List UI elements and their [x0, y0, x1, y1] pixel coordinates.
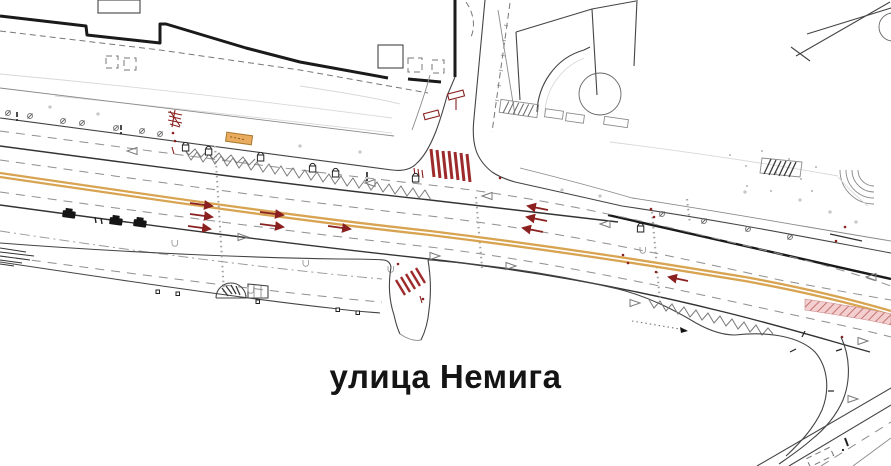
section-line — [215, 146, 224, 292]
red-hatch-cluster — [168, 110, 182, 127]
red-point-marks — [172, 132, 847, 339]
buildings-north — [0, 0, 455, 93]
pedestrian-crossing-north — [431, 149, 470, 182]
building-annex — [378, 45, 403, 68]
street-edge-right — [473, 0, 492, 172]
south-side-street — [389, 260, 430, 340]
lane-line — [0, 205, 870, 352]
pedestrian-crossing-south — [396, 268, 425, 295]
parking-bay-dashed — [806, 447, 833, 466]
bus-stop-zone — [183, 132, 773, 335]
survey-wedge — [791, 2, 891, 61]
street-name-label: улица Немига — [0, 358, 891, 396]
steps-hatched — [499, 99, 628, 127]
car-symbol — [62, 208, 76, 219]
traffic-plan-canvas: улица Немига — [0, 0, 891, 466]
building-facade-line — [0, 16, 388, 78]
building-annex — [98, 0, 140, 13]
property-boundary-dashed — [0, 31, 428, 93]
street-edge-left — [416, 77, 455, 164]
plus-marks — [48, 105, 858, 224]
stairs-hatched — [760, 158, 802, 177]
lower-carriageway — [757, 388, 891, 466]
curb-cut-marks — [172, 240, 646, 293]
ground-dots — [729, 150, 817, 192]
slip-road-ramp — [735, 331, 848, 464]
sidewalk-outer-south — [0, 262, 380, 313]
plaza-fan-curve — [537, 47, 590, 112]
lane-line-dashed — [0, 131, 891, 286]
center-double-line — [0, 173, 891, 315]
tree-circle — [879, 13, 891, 41]
curb-south — [0, 243, 391, 267]
tree-symbols — [6, 111, 793, 240]
north-side-street — [412, 0, 515, 182]
northeast-block — [499, 0, 891, 128]
small-structures — [156, 290, 360, 315]
underpass-kiosk — [216, 283, 268, 298]
section-line — [476, 197, 482, 268]
car-symbol — [133, 217, 147, 228]
sidewalk-outer-north — [0, 88, 394, 136]
lane-line-dashed — [0, 192, 891, 337]
plan-drawing — [0, 0, 891, 466]
car-symbol — [109, 215, 123, 226]
amphitheater-steps — [760, 158, 874, 206]
curb-north — [0, 118, 416, 170]
main-road — [0, 88, 891, 352]
tree-circle — [579, 73, 621, 115]
